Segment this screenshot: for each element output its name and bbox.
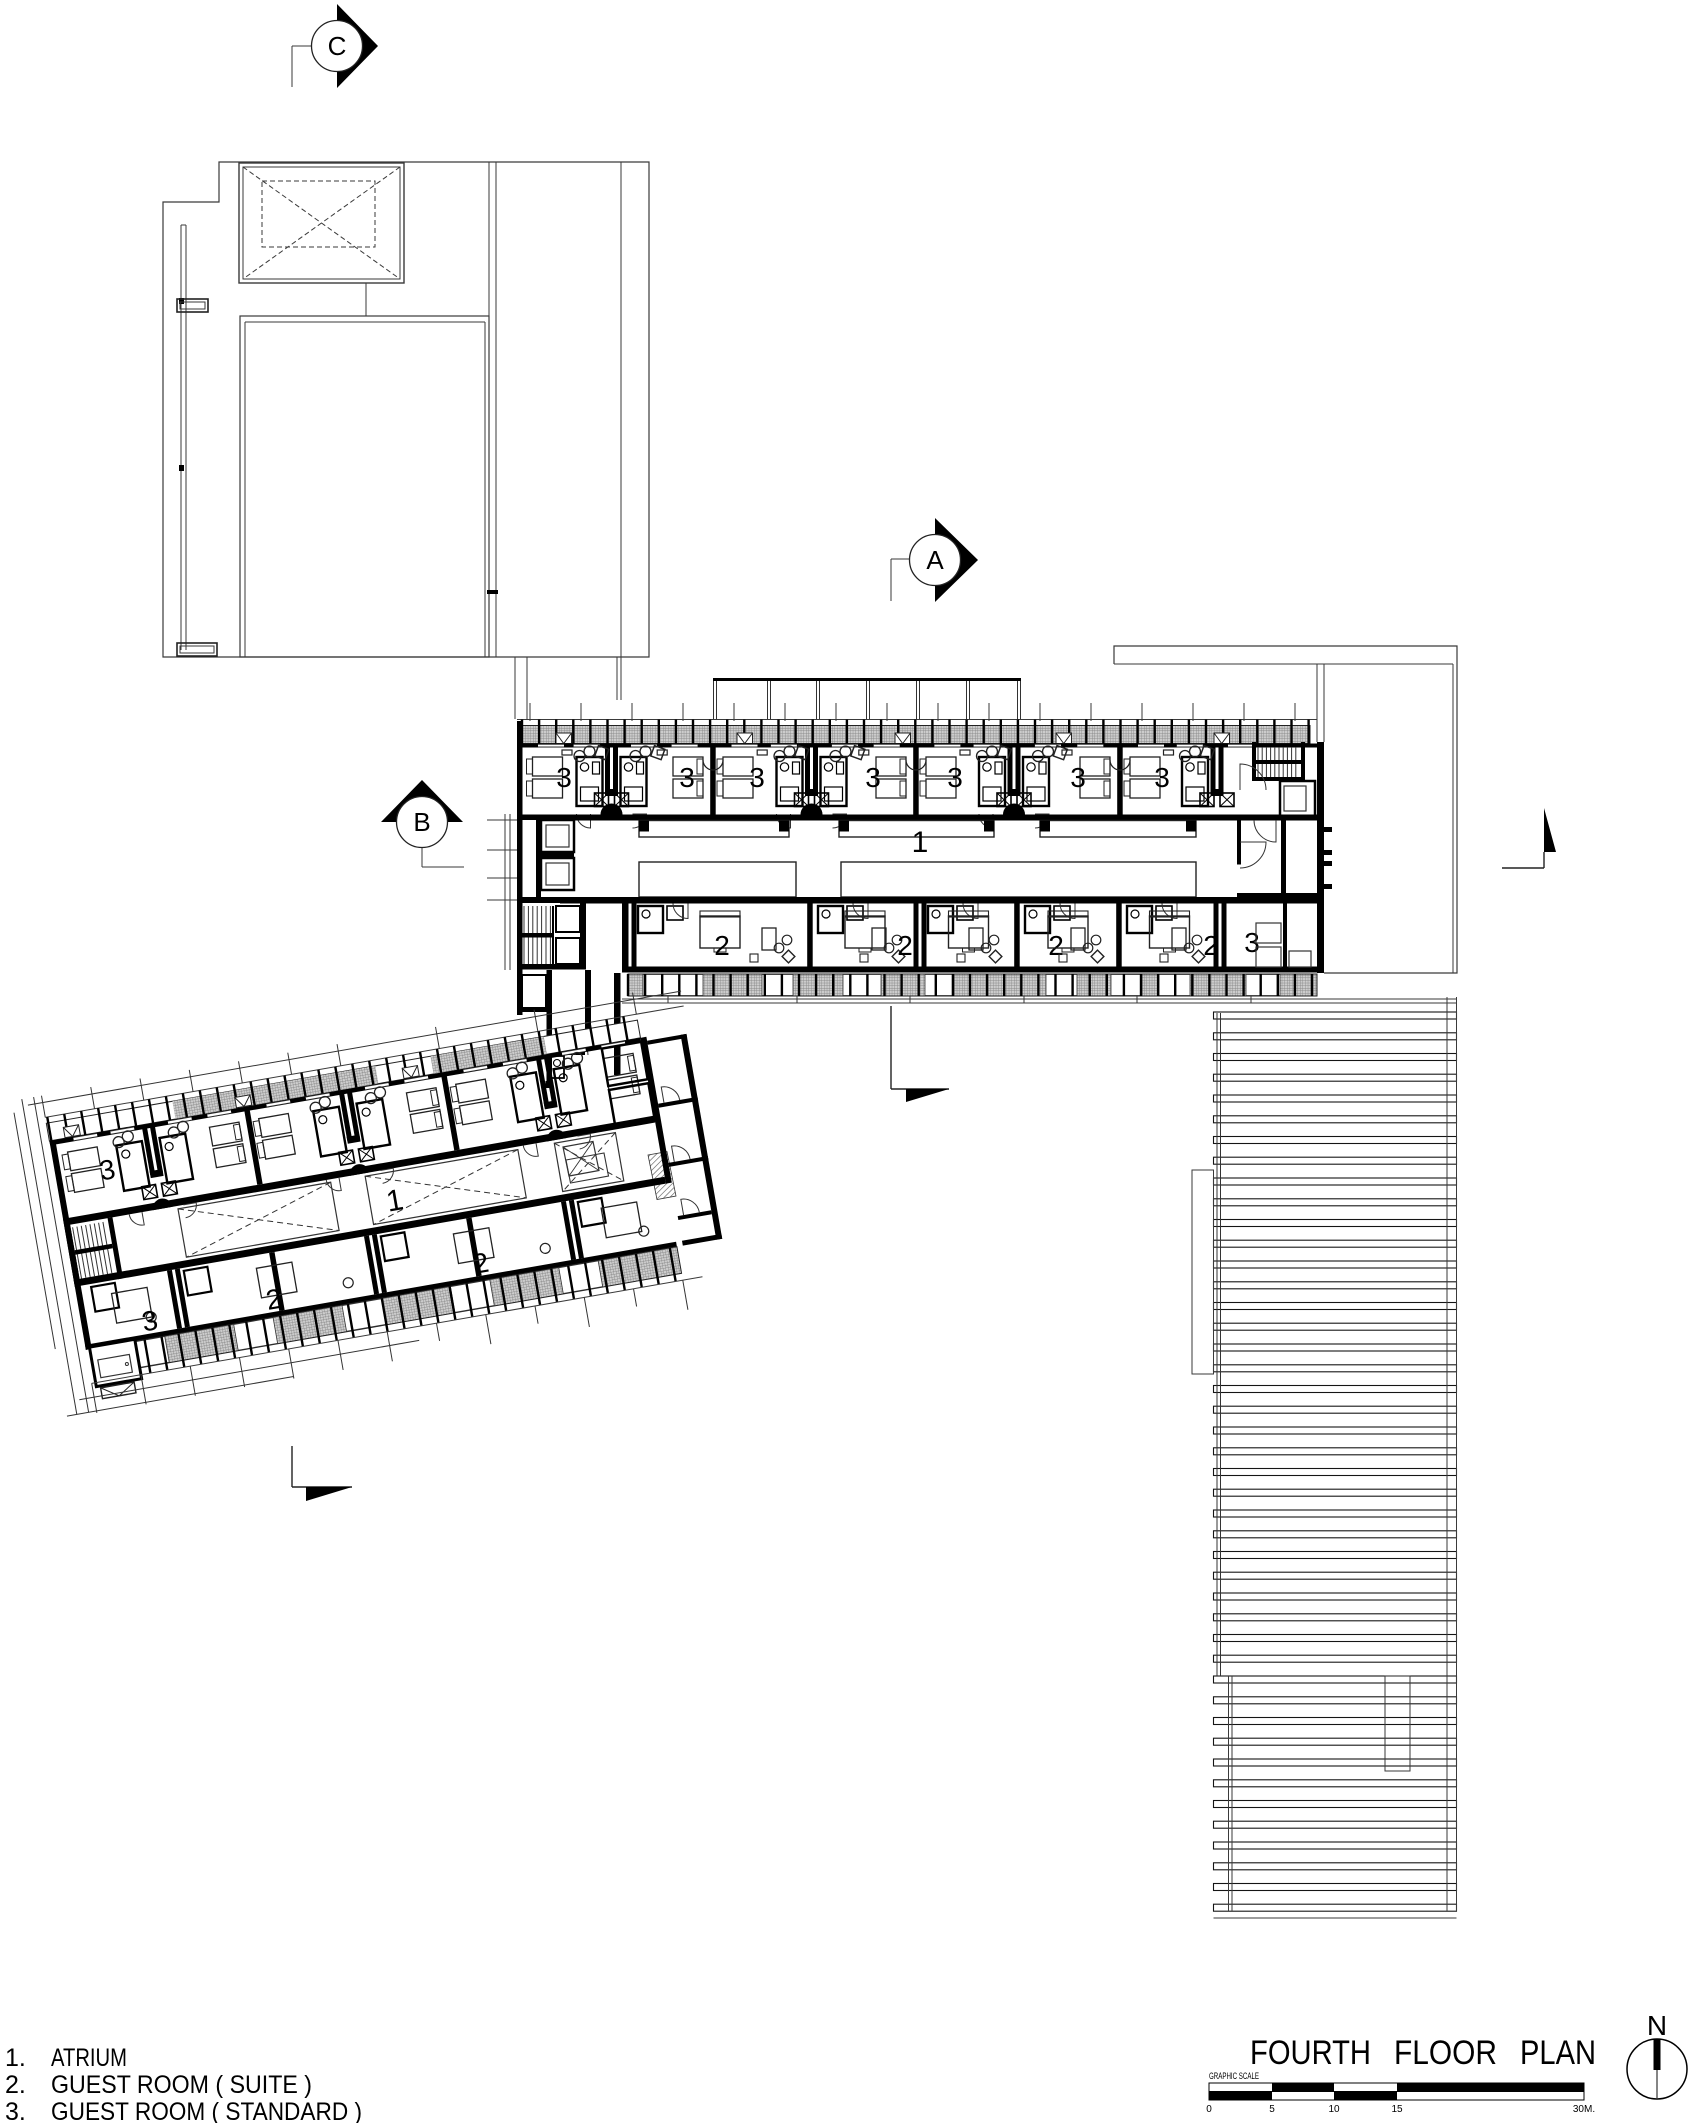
- svg-text:B: B: [413, 807, 430, 837]
- svg-text:FLOOR: FLOOR: [1394, 2034, 1497, 2072]
- svg-text:A: A: [926, 545, 944, 575]
- svg-text:GUEST ROOM ( SUITE ): GUEST ROOM ( SUITE ): [51, 2071, 312, 2099]
- svg-text:3: 3: [556, 762, 572, 793]
- svg-text:3: 3: [679, 762, 695, 793]
- svg-text:GUEST ROOM ( STANDARD ): GUEST ROOM ( STANDARD ): [51, 2098, 362, 2123]
- svg-text:2: 2: [714, 930, 730, 961]
- svg-text:3: 3: [1154, 762, 1170, 793]
- svg-text:3.: 3.: [5, 2098, 26, 2123]
- svg-text:1.: 1.: [5, 2044, 26, 2072]
- svg-text:FOURTH: FOURTH: [1250, 2034, 1371, 2072]
- svg-text:0: 0: [1206, 2104, 1212, 2115]
- svg-text:30M.: 30M.: [1573, 2104, 1595, 2115]
- svg-text:2: 2: [1048, 930, 1064, 961]
- svg-text:10: 10: [1328, 2104, 1340, 2115]
- svg-text:1: 1: [912, 826, 929, 859]
- svg-text:15: 15: [1391, 2104, 1403, 2115]
- svg-text:2.: 2.: [5, 2071, 26, 2099]
- svg-text:N: N: [1647, 2010, 1667, 2041]
- svg-text:ATRIUM: ATRIUM: [51, 2044, 127, 2072]
- svg-text:3: 3: [865, 762, 881, 793]
- svg-text:3: 3: [1070, 762, 1086, 793]
- svg-text:PLAN: PLAN: [1520, 2034, 1596, 2072]
- svg-text:3: 3: [749, 762, 765, 793]
- svg-text:5: 5: [1269, 2104, 1275, 2115]
- svg-text:2: 2: [897, 930, 913, 961]
- svg-text:GRAPHIC SCALE: GRAPHIC SCALE: [1209, 2071, 1259, 2082]
- svg-text:C: C: [328, 31, 347, 61]
- svg-text:2: 2: [1203, 930, 1219, 961]
- svg-text:3: 3: [947, 762, 963, 793]
